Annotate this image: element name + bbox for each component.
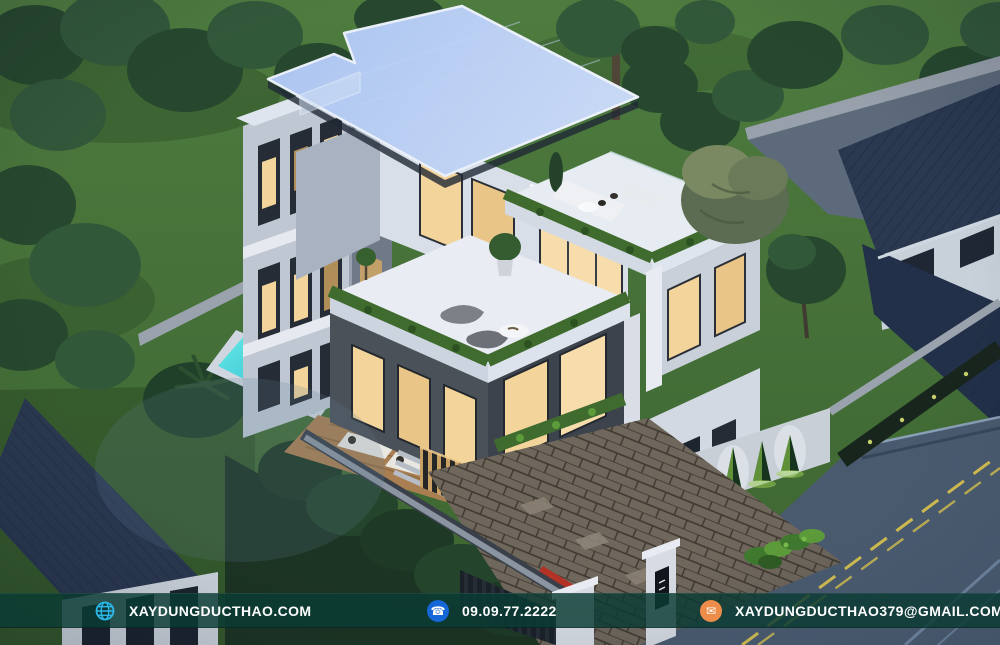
website-contact[interactable]: XAYDUNGDUCTHAO.COM <box>94 593 311 628</box>
phone-contact[interactable]: ☎ 09.09.77.2222 <box>427 593 557 628</box>
website-label: XAYDUNGDUCTHAO.COM <box>129 603 311 619</box>
phone-label: 09.09.77.2222 <box>462 603 557 619</box>
globe-icon <box>94 600 116 622</box>
email-contact[interactable]: ✉ XAYDUNGDUCTHAO379@GMAIL.COM <box>700 593 1000 628</box>
phone-icon: ☎ <box>427 600 449 622</box>
architectural-render: XAYDUNGDUCTHAO.COM ☎ 09.09.77.2222 ✉ XAY… <box>0 0 1000 645</box>
email-label: XAYDUNGDUCTHAO379@GMAIL.COM <box>735 603 1000 619</box>
scene-rendering <box>0 0 1000 645</box>
dusk-atmosphere <box>0 0 1000 645</box>
mail-icon: ✉ <box>700 600 722 622</box>
contact-bar: XAYDUNGDUCTHAO.COM ☎ 09.09.77.2222 ✉ XAY… <box>0 593 1000 628</box>
